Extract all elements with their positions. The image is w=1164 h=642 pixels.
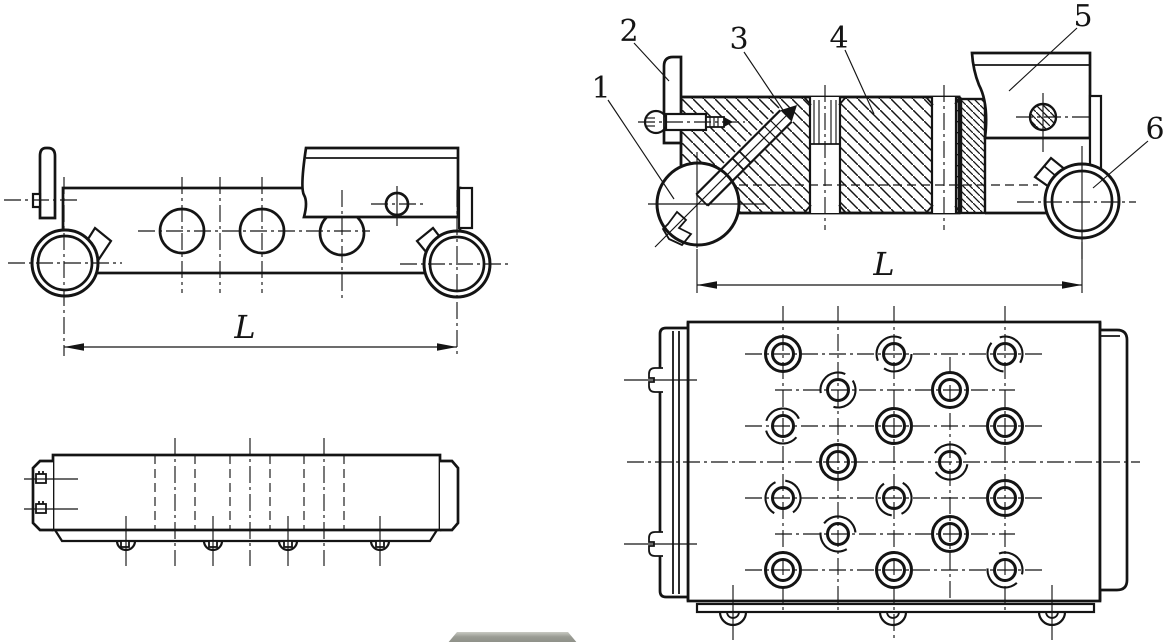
view-side-elevation: L <box>4 148 512 356</box>
part-label-5: 5 <box>1073 0 1092 34</box>
part-label-4: 4 <box>829 21 848 56</box>
side-length-label: L <box>233 308 255 346</box>
dimension-side-L: L <box>64 308 457 351</box>
bottom-scroll-button[interactable] <box>447 632 578 642</box>
end-cap-section <box>961 99 985 213</box>
drawing-canvas: L <box>0 0 1164 642</box>
view-section: L 1 2 3 4 5 6 <box>591 0 1164 293</box>
part-label-2: 2 <box>619 14 638 49</box>
view-bottom <box>24 438 458 566</box>
part-label-1: 1 <box>591 71 610 106</box>
part-label-3: 3 <box>729 22 748 57</box>
part-label-6: 6 <box>1145 112 1164 147</box>
engineering-drawing: L <box>0 0 1164 642</box>
flange-side <box>40 148 55 218</box>
dimension-section-L: L <box>697 242 1082 293</box>
section-length-label: L <box>872 245 894 283</box>
view-plan <box>624 306 1140 640</box>
